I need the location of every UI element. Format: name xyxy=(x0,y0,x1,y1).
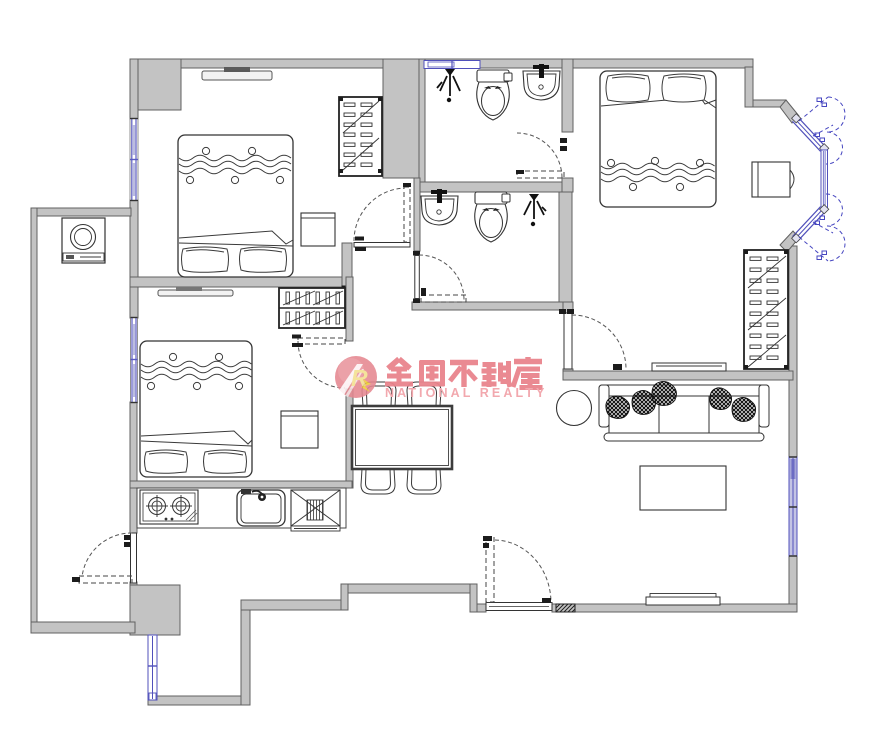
svg-text:NATIONAL REALTY: NATIONAL REALTY xyxy=(385,386,547,400)
